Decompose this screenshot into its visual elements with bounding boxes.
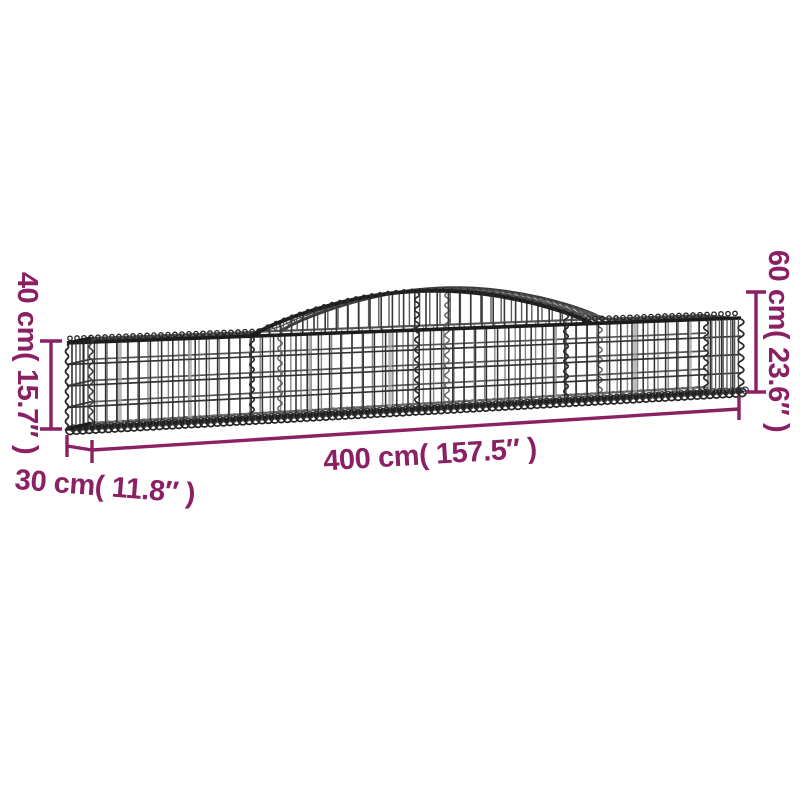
svg-text:40 cm( 15.7″ ): 40 cm( 15.7″ ) [11,272,43,454]
svg-text:60 cm( 23.6″ ): 60 cm( 23.6″ ) [762,250,794,432]
